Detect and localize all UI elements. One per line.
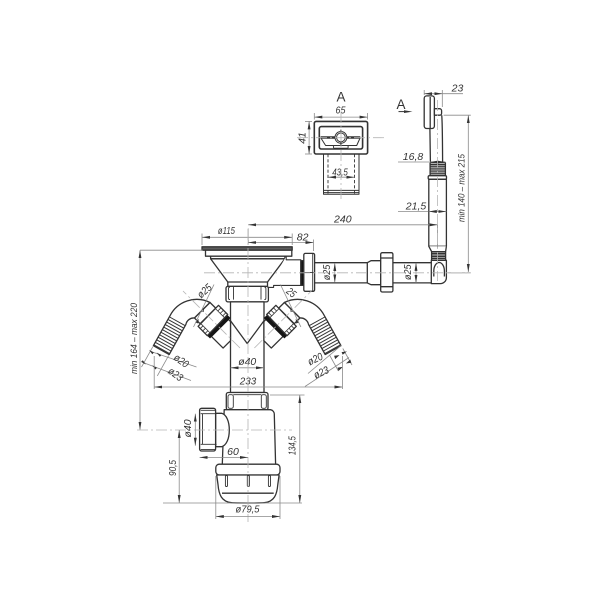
svg-text:134,5: 134,5 bbox=[287, 436, 299, 455]
svg-text:90,5: 90,5 bbox=[167, 460, 179, 476]
svg-text:min 164 – max 220: min 164 – max 220 bbox=[129, 302, 139, 374]
svg-text:ø40: ø40 bbox=[238, 356, 256, 368]
svg-text:65: 65 bbox=[336, 104, 346, 116]
svg-text:ø79,5: ø79,5 bbox=[236, 504, 260, 516]
svg-text:ø25: ø25 bbox=[402, 264, 414, 280]
svg-text:43,5: 43,5 bbox=[332, 166, 348, 178]
svg-text:ø25: ø25 bbox=[195, 282, 215, 301]
svg-text:min 140 – max 215: min 140 – max 215 bbox=[456, 153, 466, 222]
svg-text:16,8: 16,8 bbox=[403, 151, 424, 163]
svg-text:25: 25 bbox=[283, 285, 298, 301]
svg-text:A: A bbox=[396, 97, 405, 112]
svg-text:82: 82 bbox=[297, 231, 309, 243]
svg-text:A: A bbox=[336, 90, 345, 105]
svg-text:240: 240 bbox=[333, 213, 352, 225]
svg-text:21,5: 21,5 bbox=[405, 201, 427, 213]
svg-text:ø40: ø40 bbox=[182, 419, 194, 437]
svg-text:ø23: ø23 bbox=[312, 364, 331, 381]
svg-text:23: 23 bbox=[451, 83, 464, 95]
svg-text:60: 60 bbox=[227, 446, 239, 458]
svg-text:233: 233 bbox=[239, 376, 257, 388]
svg-text:ø115: ø115 bbox=[218, 225, 235, 237]
